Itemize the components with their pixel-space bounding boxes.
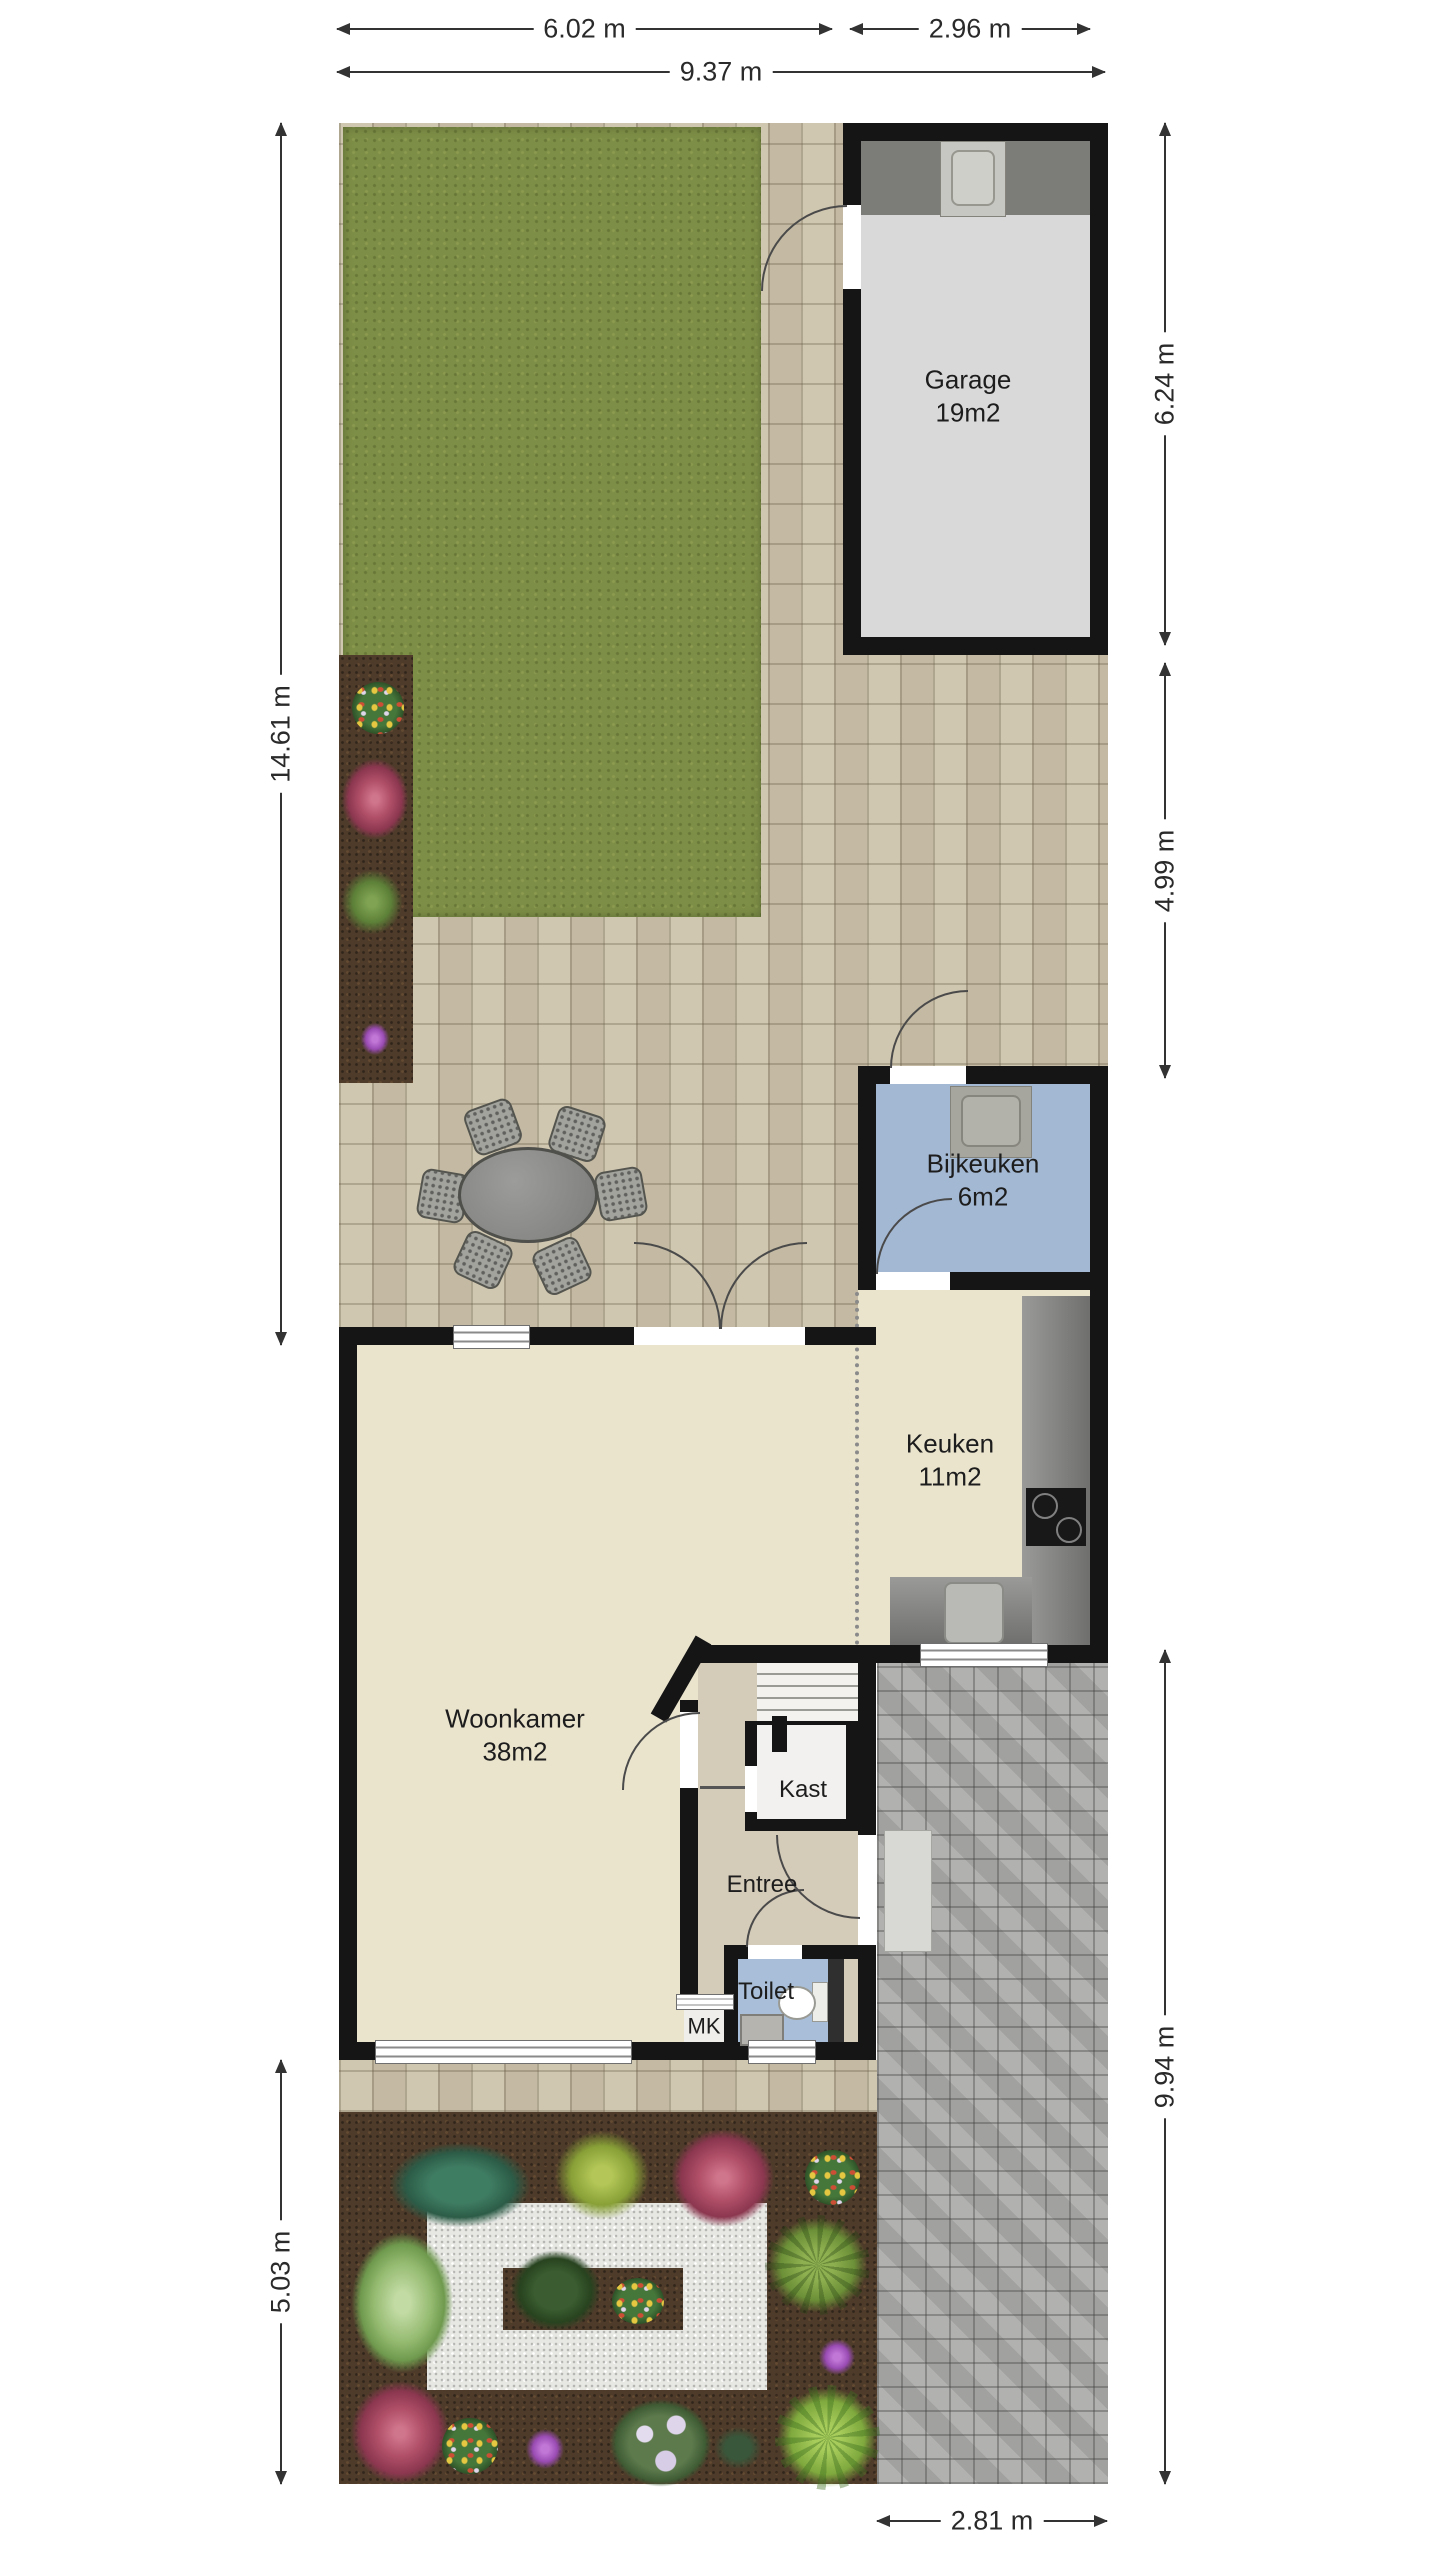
stair-wall-notch bbox=[772, 1716, 787, 1752]
cooktop bbox=[1026, 1488, 1086, 1546]
garage-name: Garage bbox=[925, 364, 1012, 397]
room-label-mk: MK bbox=[688, 2012, 721, 2040]
plant-pink-shrub bbox=[670, 2128, 775, 2228]
burner-ring bbox=[1032, 1493, 1058, 1519]
washing-machine-drum bbox=[961, 1095, 1021, 1147]
plant-fern bbox=[765, 2215, 870, 2315]
room-label-kast: Kast bbox=[779, 1775, 827, 1805]
mk-name: MK bbox=[688, 2012, 721, 2040]
room-label-toilet: Toilet bbox=[738, 1977, 794, 2007]
front-door-opening bbox=[858, 1835, 876, 1945]
dimension-label: 9.94 m bbox=[1148, 2016, 1183, 2119]
entree-name: Entree bbox=[727, 1870, 798, 1900]
plant-palm-grass bbox=[775, 2385, 880, 2490]
driveway-paving bbox=[877, 1663, 1108, 2484]
dimension-line-bottom-driveway: 2.81 m bbox=[877, 2520, 1107, 2522]
dimension-label: 2.81 m bbox=[941, 2504, 1044, 2539]
keuken-name: Keuken bbox=[906, 1428, 994, 1461]
toilet-window bbox=[748, 2040, 816, 2064]
kitchen-window bbox=[920, 1643, 1048, 1667]
dimension-label: 2.96 m bbox=[919, 12, 1022, 47]
living-room-window-bottom bbox=[375, 2040, 632, 2064]
burner-ring bbox=[1056, 1517, 1082, 1543]
bijkeuken-area: 6m2 bbox=[927, 1180, 1040, 1213]
dimension-label: 4.99 m bbox=[1148, 819, 1183, 922]
dimension-label: 6.02 m bbox=[533, 12, 636, 47]
dimension-line-right-garage: 6.24 m bbox=[1164, 123, 1166, 645]
closet-door-leaf bbox=[700, 1786, 745, 1789]
living-room-left-wall bbox=[339, 1327, 357, 2060]
dimension-line-top-garden: 6.02 m bbox=[337, 28, 832, 30]
woonkamer-area: 38m2 bbox=[445, 1735, 585, 1768]
garage-sink-unit bbox=[940, 141, 1006, 217]
room-label-garage: Garage 19m2 bbox=[925, 364, 1012, 429]
dimension-label: 5.03 m bbox=[264, 2221, 299, 2324]
plant-dark-bush bbox=[712, 2425, 764, 2471]
toilet-name: Toilet bbox=[738, 1977, 794, 2007]
toilet-door-opening bbox=[748, 1945, 802, 1959]
utility-kitchen-door-opening bbox=[876, 1272, 950, 1290]
plant-flower-patch bbox=[612, 2278, 664, 2324]
meter-closet-window bbox=[676, 1994, 734, 2010]
keuken-area: 11m2 bbox=[906, 1460, 994, 1493]
utility-exterior-door-opening bbox=[890, 1066, 966, 1084]
french-doors-opening bbox=[634, 1327, 805, 1345]
floor-plan: Garage 19m2 Bijkeuken 6m2 Keuken 11m2 bbox=[0, 0, 1440, 2560]
staircase bbox=[757, 1663, 858, 1721]
room-label-entree: Entree bbox=[727, 1870, 798, 1900]
plant-purple-flower bbox=[818, 2338, 856, 2376]
plant-pink-shrub bbox=[341, 758, 409, 840]
kitchen-counter-right bbox=[1022, 1296, 1090, 1645]
plant-flower-patch bbox=[805, 2150, 860, 2205]
woonkamer-name: Woonkamer bbox=[445, 1703, 585, 1736]
dimension-line-right-lower: 9.94 m bbox=[1164, 1650, 1166, 2484]
doormat bbox=[884, 1830, 932, 1952]
bijkeuken-name: Bijkeuken bbox=[927, 1148, 1040, 1181]
plant-white-lilac bbox=[608, 2398, 713, 2488]
kast-name: Kast bbox=[779, 1775, 827, 1805]
garage-area: 19m2 bbox=[925, 396, 1012, 429]
plant-purple-flower bbox=[360, 1022, 390, 1056]
plant-flower-patch bbox=[442, 2418, 498, 2474]
room-label-woonkamer: Woonkamer 38m2 bbox=[445, 1703, 585, 1768]
closet-door-opening bbox=[745, 1766, 757, 1812]
room-label-bijkeuken: Bijkeuken 6m2 bbox=[927, 1148, 1040, 1213]
living-room-window-top bbox=[453, 1325, 530, 1349]
dining-table bbox=[458, 1147, 598, 1243]
plant-pink-shrub bbox=[350, 2380, 450, 2485]
dimension-line-top-total: 9.37 m bbox=[337, 71, 1105, 73]
kitchen-sink bbox=[944, 1582, 1004, 1644]
dimension-label: 9.37 m bbox=[670, 55, 773, 90]
plant-green-bush bbox=[340, 868, 404, 936]
dimension-line-left-lower: 5.03 m bbox=[280, 2060, 282, 2484]
dining-chair bbox=[593, 1165, 649, 1223]
plant-yellow-green-bush bbox=[552, 2128, 652, 2223]
dimension-line-left-upper: 14.61 m bbox=[280, 123, 282, 1345]
garage-sink-basin bbox=[951, 150, 995, 206]
kitchen-right-wall bbox=[1090, 1290, 1108, 1663]
dimension-line-top-garage: 2.96 m bbox=[850, 28, 1090, 30]
dimension-label: 14.61 m bbox=[264, 675, 299, 793]
dimension-label: 6.24 m bbox=[1148, 333, 1183, 436]
plant-purple-flower bbox=[525, 2428, 565, 2470]
front-paving-strip bbox=[339, 2060, 877, 2112]
plant-teal-groundcover bbox=[385, 2140, 535, 2230]
room-label-keuken: Keuken 11m2 bbox=[906, 1428, 994, 1493]
dimension-line-right-mid: 4.99 m bbox=[1164, 663, 1166, 1078]
toilet-cabinet bbox=[828, 1959, 844, 2042]
plant-flower-patch bbox=[352, 682, 404, 734]
